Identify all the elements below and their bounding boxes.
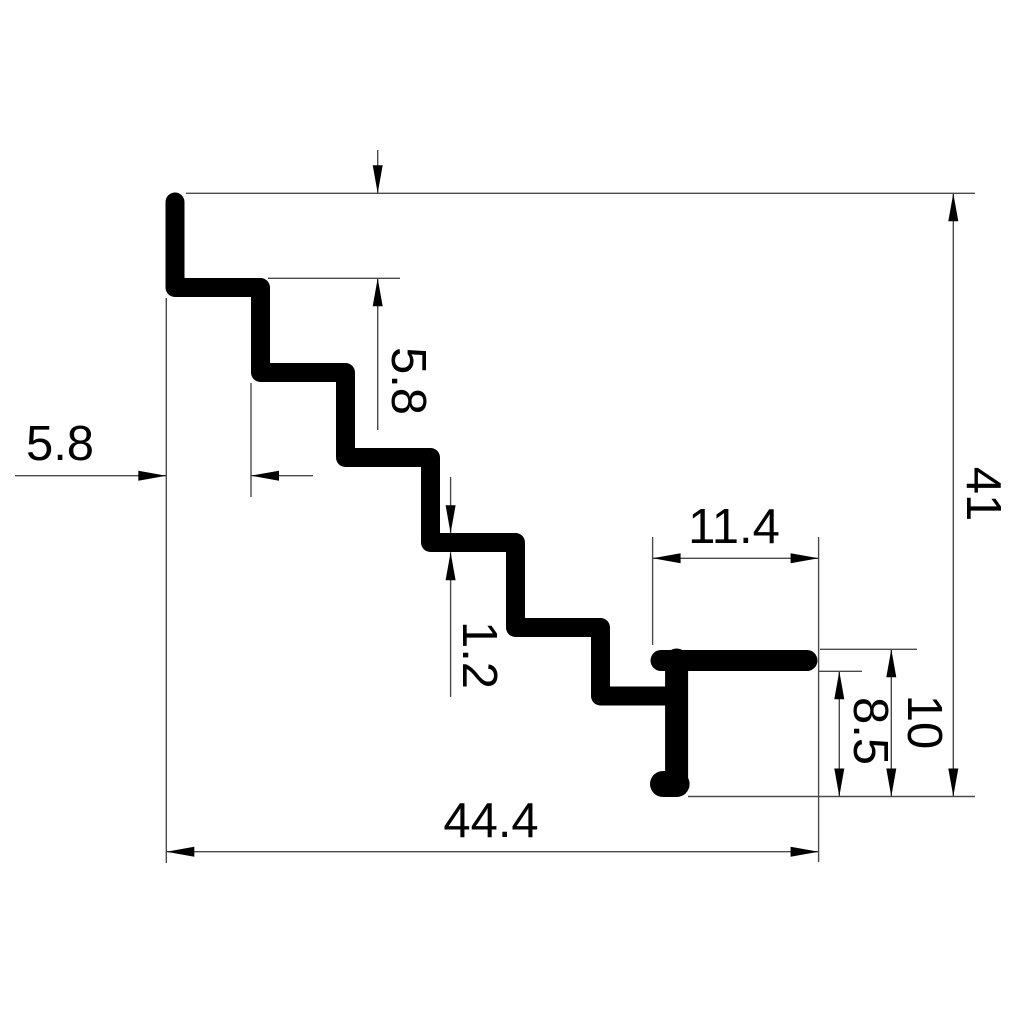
label-flange-width: 11.4 xyxy=(688,500,780,554)
arrow-total-height-bottom xyxy=(948,769,958,797)
arrow-wall-thickness-top xyxy=(446,505,456,533)
arrow-step-height-bottom xyxy=(373,278,383,306)
arrow-leg-overall-bottom xyxy=(886,769,896,797)
profile-drawing-svg: 5.8 5.8 1.2 11.4 41 10 8.5 44.4 xyxy=(0,0,1024,1024)
technical-drawing-page: 5.8 5.8 1.2 11.4 41 10 8.5 44.4 xyxy=(0,0,1024,1024)
arrow-step-depth-right xyxy=(251,471,279,481)
arrow-total-width-left xyxy=(166,847,194,857)
arrow-step-depth-left xyxy=(138,471,166,481)
label-step-depth: 5.8 xyxy=(26,417,94,471)
profile-outline xyxy=(175,202,807,784)
arrow-flange-width-left xyxy=(653,553,681,563)
arrow-step-height-top xyxy=(373,165,383,193)
label-leg-inner: 8.5 xyxy=(843,697,897,765)
arrow-wall-thickness-bottom xyxy=(446,552,456,580)
arrow-leg-overall-top xyxy=(886,649,896,677)
profile-staircase xyxy=(175,202,670,696)
label-leg-overall: 10 xyxy=(897,695,951,750)
arrow-flange-width-right xyxy=(791,553,819,563)
arrow-total-height-top xyxy=(948,193,958,221)
dimension-arrowheads xyxy=(138,165,958,856)
label-total-height: 41 xyxy=(956,467,1010,522)
label-step-height: 5.8 xyxy=(381,347,435,415)
arrow-leg-inner-bottom xyxy=(834,769,844,797)
arrow-total-width-right xyxy=(791,847,819,857)
arrow-leg-inner-top xyxy=(834,671,844,699)
label-total-width: 44.4 xyxy=(443,794,538,848)
dimension-lines xyxy=(15,150,975,863)
label-wall-thickness: 1.2 xyxy=(452,621,506,689)
